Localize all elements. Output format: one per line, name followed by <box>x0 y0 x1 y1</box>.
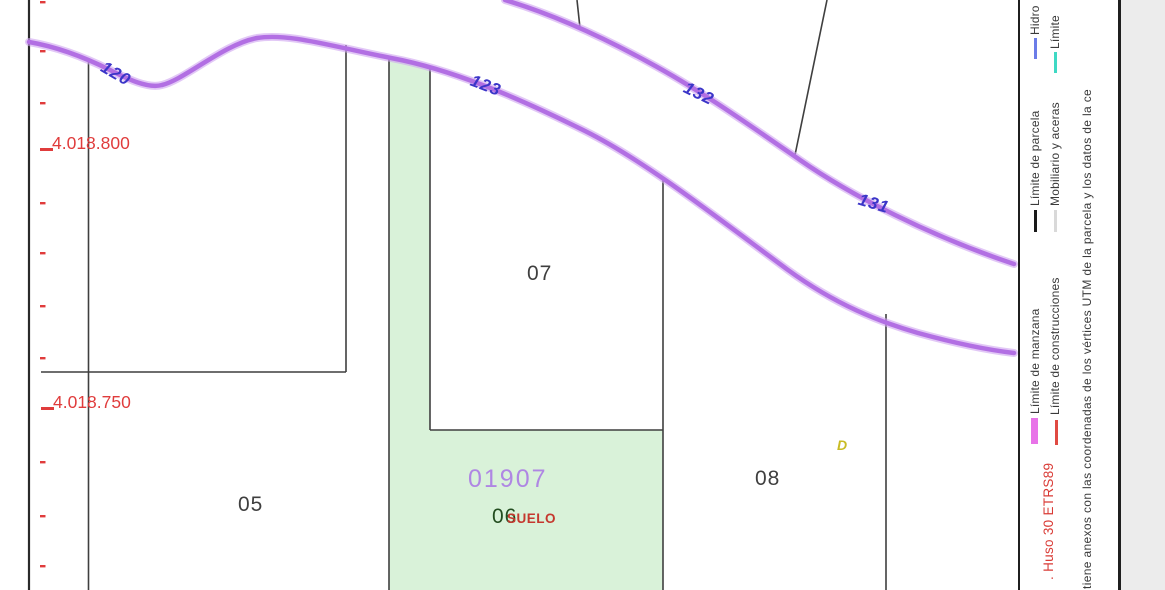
hydrography-line-symbol <box>1034 38 1037 59</box>
page-right-margin <box>1121 0 1165 590</box>
grid-tick <box>40 1 46 3</box>
parcel-label-05: 05 <box>238 493 263 517</box>
construction-limit-line-symbol <box>1055 420 1058 445</box>
parcel-label-07: 07 <box>527 262 552 286</box>
grid-label-4018800: 4.018.800 <box>52 133 130 154</box>
grid-tick <box>40 305 46 307</box>
grid-tick <box>40 102 46 104</box>
grid-tick <box>40 252 46 254</box>
street-furniture-line-symbol <box>1054 210 1057 232</box>
legend-label-limite: Límite <box>1048 9 1063 49</box>
annex-disclaimer-text: ntiene anexos con las coordenadas de los… <box>1080 0 1095 590</box>
grid-tick <box>40 515 46 517</box>
teal-limit-line-symbol <box>1054 52 1057 73</box>
annex-label-d: D <box>837 437 847 453</box>
legend-label-hidro: Hidro <box>1028 0 1043 35</box>
grid-ticks <box>40 1 46 567</box>
grid-tick <box>40 202 46 204</box>
grid-tick <box>40 461 46 463</box>
grid-tick <box>40 50 46 52</box>
highlighted-parcel-code: 01907 <box>468 465 548 494</box>
cadastral-map-view: 120 123 132 131 4.018.800 4.018.750 05 0… <box>0 0 1165 590</box>
sidebar-left-border <box>1018 0 1020 590</box>
legend-label-limite-de-parcela: Límite de parcela <box>1028 84 1043 206</box>
map-canvas[interactable] <box>0 0 1018 590</box>
parcel-limit-line-symbol <box>1034 210 1037 232</box>
block-limit-line-symbol <box>1031 418 1038 444</box>
grid-tick <box>40 357 46 359</box>
parcel-label-08: 08 <box>755 467 780 491</box>
projection-note: . Huso 30 ETRS89 <box>1041 460 1058 580</box>
manzana-lines <box>29 0 1014 353</box>
parcel-boundary-line <box>795 0 827 155</box>
grid-tick <box>40 565 46 567</box>
land-use-label: SUELO <box>507 511 556 526</box>
legend-label-limite-de-construcciones: Límite de construcciones <box>1048 271 1063 415</box>
legend-label-mobiliario-y-aceras: Mobiliario y aceras <box>1048 71 1063 206</box>
legend-label-limite-de-manzana: Límite de manzana <box>1028 294 1043 414</box>
grid-label-4018750: 4.018.750 <box>53 392 131 413</box>
